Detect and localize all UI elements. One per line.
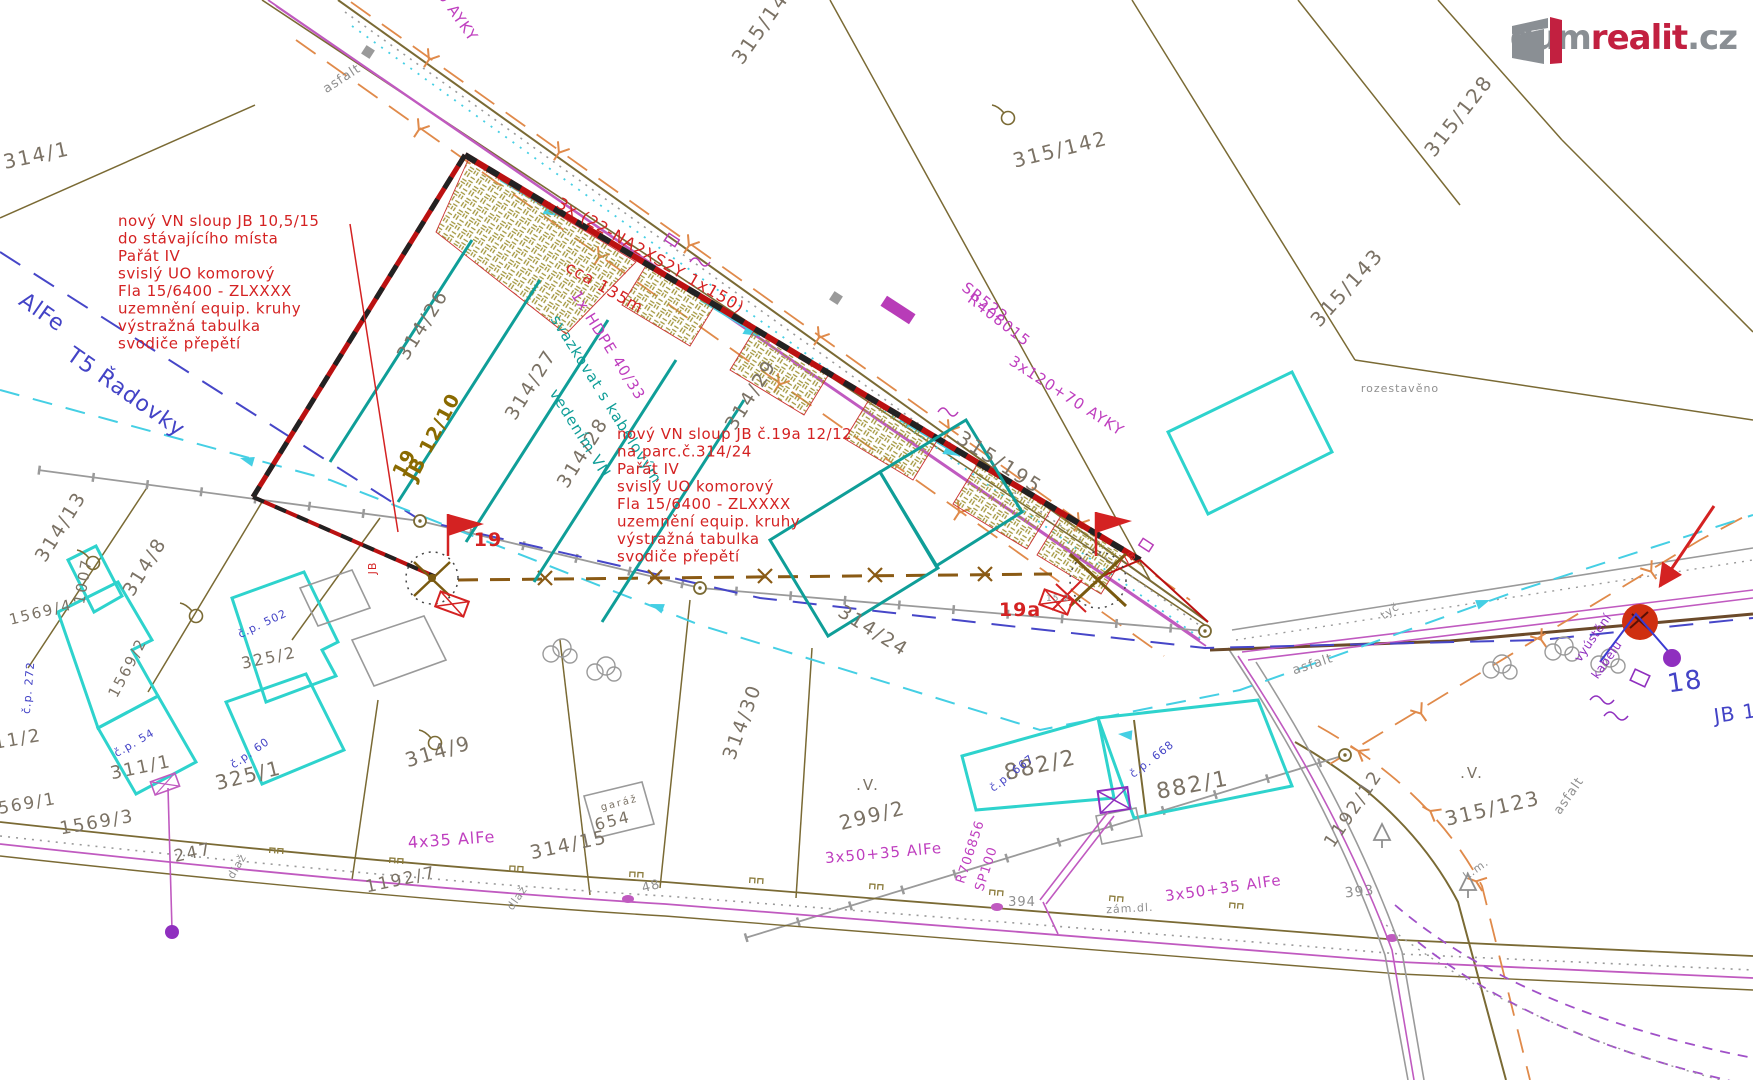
map-label: 315/142 — [1010, 126, 1110, 173]
map-label: dlaž — [504, 883, 530, 912]
annotation-pole19: výstražná tabulka — [118, 317, 261, 335]
map-label: č.p. 502 — [236, 607, 289, 641]
map-label: 3x120+70 AYKY — [1006, 352, 1128, 440]
map-label: .V. — [856, 776, 880, 794]
map-label: 19 — [474, 529, 502, 551]
map-label: 393 — [1344, 883, 1375, 902]
map-label: asfalt — [320, 61, 363, 96]
map-label: 314/15 — [528, 826, 610, 864]
map-label: 4x35 AlFe — [407, 827, 496, 852]
map-label: 1569/4 — [7, 596, 74, 629]
map-label: 315/143 — [1305, 243, 1388, 331]
map-label: 1569/1 — [0, 789, 58, 821]
map-label: 314/8 — [118, 534, 171, 601]
map-label: R408015 — [964, 290, 1034, 350]
dumrealit-logo-icon — [1510, 14, 1568, 66]
annotation-pole19a: Pařát IV — [617, 460, 679, 478]
parcel-boundaries — [0, 0, 1753, 1080]
map-label: 315/123 — [1442, 786, 1542, 831]
map-label: AlFe — [14, 288, 69, 337]
map-label: 314/30 — [719, 681, 767, 763]
map-label: 1569/2 — [104, 635, 150, 701]
map-label: JB 1 — [1710, 698, 1753, 728]
annotation-pole19a: svislý UO komorový — [617, 478, 774, 496]
map-label: zám.dl. — [1106, 901, 1154, 916]
map-label: T5 Řadovky — [61, 341, 190, 442]
sr-box-symbol — [880, 296, 915, 325]
map-label: dlaž — [225, 851, 250, 881]
map-label: asfalt — [1551, 774, 1587, 817]
map-label: 1569/3 — [58, 806, 136, 840]
annotation-pole19a: na parc.č.314/24 — [617, 443, 752, 461]
map-label: 3x50+35 AlFe — [1164, 871, 1283, 905]
right-roads — [1210, 512, 1753, 1080]
cable-joint-symbol — [991, 903, 1003, 911]
map-label: 314/27 — [501, 346, 561, 425]
logo-word-cz: .cz — [1687, 18, 1737, 58]
map-label: č.p. 272 — [20, 661, 38, 714]
annotation-pole19: do stávajícího místa — [118, 230, 278, 248]
annotation-pole19a: uzemnění equip. kruhy — [617, 513, 800, 531]
map-label: asfalt — [1291, 651, 1336, 678]
annotation-pole19: svodiče přepětí — [118, 335, 241, 353]
map-label: 314/1 — [1, 136, 72, 174]
map-label: rozestavěno — [1361, 382, 1439, 395]
dumrealit-watermark: dumrealit.cz — [1510, 14, 1737, 62]
road-sign-symbol — [361, 45, 375, 59]
map-label: 315/128 — [1419, 70, 1498, 161]
map-label: 1192/7 — [364, 863, 438, 897]
map-label: 299/2 — [837, 795, 908, 835]
annotation-pole19a: nový VN sloup JB č.19a 12/12 — [617, 425, 852, 443]
annotation-pole19: uzemnění equip. kruhy — [118, 300, 301, 318]
cadastral-plan-canvas: 314/1315/141315/142315/128315/143315/195… — [0, 0, 1753, 1080]
map-label: 48 — [640, 877, 662, 896]
annotation-pole19: svislý UO komorový — [118, 265, 275, 283]
annotation-pole19a: svodiče přepětí — [617, 548, 740, 566]
map-label: 3x50+35 AlFe — [824, 839, 943, 867]
map-label: JB 12/10 — [400, 390, 465, 487]
map-label: 394 — [1008, 895, 1036, 910]
map-label: 315/141 — [727, 0, 802, 69]
map-label: 19a — [999, 599, 1041, 621]
map-label: 314/26 — [393, 286, 453, 365]
map-label: 1192/12 — [1320, 766, 1387, 851]
map-label: 15.2 — [1046, 594, 1070, 604]
map-label: .V. — [1460, 764, 1484, 782]
map-label: 18 — [1665, 665, 1704, 700]
map-label: 1007 — [70, 557, 96, 606]
map-label: 311/2 — [0, 725, 43, 756]
plan-drawing: 314/1315/141315/142315/128315/143315/195… — [0, 0, 1753, 1080]
annotation-pole19: Pařát IV — [118, 247, 180, 265]
map-label: JB — [366, 562, 379, 576]
annotation-pole19a: Fla 15/6400 - ZLXXXX — [617, 495, 791, 513]
map-label: 247 — [172, 839, 214, 867]
annotation-pole19a: výstražná tabulka — [617, 530, 760, 548]
removed-overhead-line — [458, 567, 1052, 585]
map-label: 3x120+70 AYKY — [391, 0, 482, 45]
logo-word-realit: realit — [1591, 18, 1687, 58]
annotation-pole19: nový VN sloup JB 10,5/15 — [118, 212, 319, 230]
road-sign-symbol — [829, 291, 843, 305]
annotation-pole19: Fla 15/6400 - ZLXXXX — [118, 282, 292, 300]
map-label: 882/1 — [1154, 766, 1231, 805]
map-label: č.p. 668 — [1127, 738, 1176, 781]
cable-joint-symbol — [622, 895, 634, 903]
